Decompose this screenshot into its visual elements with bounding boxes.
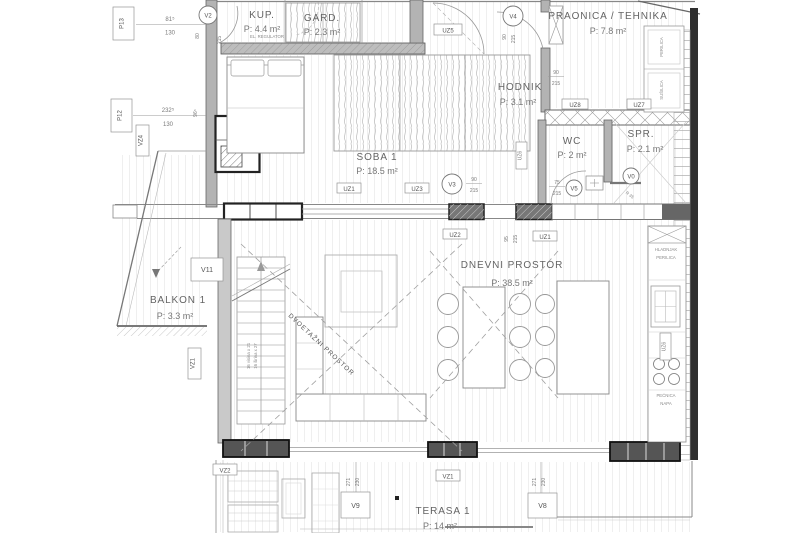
gard-right-wall — [410, 0, 423, 43]
hodnik-opening-height: 215 — [552, 81, 561, 87]
v8-height: 230 — [541, 478, 547, 487]
wall-label-vz1a: VZ1 — [191, 357, 197, 369]
door-marker-v2-label: V2 — [204, 14, 212, 20]
p12-height: 130 — [163, 122, 174, 128]
room-wc-area: P: 2 m² — [557, 150, 586, 160]
drain-point — [395, 496, 399, 500]
wall-label-uz3: UZ3 — [411, 187, 423, 193]
v5-height: 215 — [553, 191, 562, 197]
room-terasa1-name: TERASA 1 — [416, 506, 471, 517]
wall-label-vz1b: VZ1 — [442, 475, 454, 481]
perilica-kitchen-label: PERILICA — [656, 255, 676, 260]
el-regulator-note: EL. REGULATOR — [250, 34, 284, 39]
pillow — [231, 60, 264, 76]
room-spr-name: SPR. — [628, 129, 655, 140]
wall-label-uz7: UZ7 — [633, 103, 645, 109]
v4-height: 215 — [511, 35, 517, 44]
wall-label-uz6b: UZ6 — [662, 342, 668, 352]
room-praonica-name: PRAONICA / TEHNIKA — [548, 11, 667, 22]
v9-width: 271 — [346, 478, 352, 487]
room-terasa1-area: P: 14 m² — [423, 521, 457, 531]
p13-width: 81⁵ — [165, 16, 175, 23]
napa-label: NAPA — [660, 401, 672, 406]
left-lower-wall — [218, 219, 231, 443]
hodnik-opening-width: 90 — [553, 70, 559, 76]
dining-table — [463, 287, 505, 388]
pillow — [268, 60, 301, 76]
terasa-window-left — [223, 440, 289, 457]
terasa-window-mid — [428, 442, 477, 457]
door-marker-v0-label: V0 — [627, 175, 635, 181]
soba1-window — [224, 204, 302, 220]
room-balkon1-area: P: 3.3 m² — [157, 311, 194, 321]
room-dnevni-name: DNEVNI PROSTOR — [461, 260, 563, 271]
room-praonica-area: P: 7.8 m² — [590, 26, 627, 36]
wall-label-uz2: UZ2 — [449, 233, 461, 239]
v3-height: 215 — [470, 188, 479, 194]
v5-width: 75 — [554, 180, 560, 186]
v2-height: 215 — [217, 36, 223, 45]
hladnjak-label: HLADNJAK — [655, 247, 678, 252]
wc-left-wall — [538, 120, 546, 205]
wall-label-uz1b: UZ1 — [539, 235, 551, 241]
door-marker-v5-label: V5 — [570, 187, 578, 193]
p13-height: 130 — [165, 31, 176, 37]
pecnica-label: PEĆNICA — [656, 393, 675, 398]
panel-label-p12: P12 — [118, 110, 124, 121]
room-gard-name: GARD. — [304, 13, 340, 24]
p12-side-dim: 96⁵ — [193, 109, 199, 117]
v2-width: 80 — [195, 33, 201, 39]
room-balkon1-name: BALKON 1 — [150, 295, 206, 306]
panel-label-p13: P13 — [120, 18, 126, 29]
window-marker-v9-label: V9 — [351, 503, 360, 510]
sofa — [296, 394, 426, 421]
kitchen-island — [557, 281, 609, 394]
room-gard-area: P: 2.3 m² — [304, 27, 341, 37]
wall-label-uz8: UZ8 — [569, 103, 581, 109]
stairs-note-2: 16 širina x 27 — [253, 343, 258, 369]
stairs-note-1: 16 visina x 21 — [246, 342, 251, 369]
room-hodnik-area: P: 3.1 m² — [500, 97, 537, 107]
room-soba1-area: P: 18.5 m² — [356, 166, 398, 176]
room-kup-area: P: 4.4 m² — [244, 24, 281, 34]
room-wc-name: WC — [563, 136, 581, 147]
perilica-label: PERILICA — [659, 37, 664, 57]
susilica-label: SUŠILICA — [659, 80, 664, 100]
terasa-window-right — [610, 442, 680, 461]
left-wall — [206, 0, 217, 207]
wall-end-dark — [662, 204, 690, 220]
wall-label-vz4: VZ4 — [139, 134, 145, 146]
room-hodnik-name: HODNIK — [498, 82, 542, 93]
uz1-opening-height: 215 — [513, 235, 519, 244]
right-outer-wall — [690, 8, 698, 460]
wc-spr-wall — [604, 120, 612, 182]
island-stools — [536, 295, 555, 378]
hodnik-praonica-wall — [541, 48, 550, 112]
uz1-opening-width: 95 — [504, 236, 510, 242]
door-marker-v4-label: V4 — [509, 15, 517, 21]
v3-width: 90 — [471, 177, 477, 183]
wall-label-vz2: VZ2 — [219, 469, 231, 475]
wall-label-uz5: UZ5 — [442, 29, 454, 35]
window-marker-v8-label: V8 — [538, 503, 547, 510]
room-dnevni-area: P: 38.5 m² — [491, 278, 533, 288]
room-spr-area: P: 2.1 m² — [627, 144, 664, 154]
door-marker-v3-label: V3 — [448, 183, 456, 189]
wall-label-uz6a: UZ6 — [518, 151, 524, 161]
v8-width: 271 — [532, 478, 538, 487]
room-soba1-name: SOBA 1 — [357, 152, 398, 163]
window-marker-v11-label: V11 — [201, 267, 213, 274]
floor-plan: V2 V4 V3 V5 V0 V11 V9 V8 UZ5 UZ8 UZ7 UZ1… — [0, 0, 800, 533]
v4-width: 90 — [502, 34, 508, 40]
wall-label-uz1a: UZ1 — [343, 187, 355, 193]
v9-height: 230 — [355, 478, 361, 487]
p12-width: 232⁵ — [162, 107, 175, 114]
room-kup-name: KUP. — [249, 10, 275, 21]
